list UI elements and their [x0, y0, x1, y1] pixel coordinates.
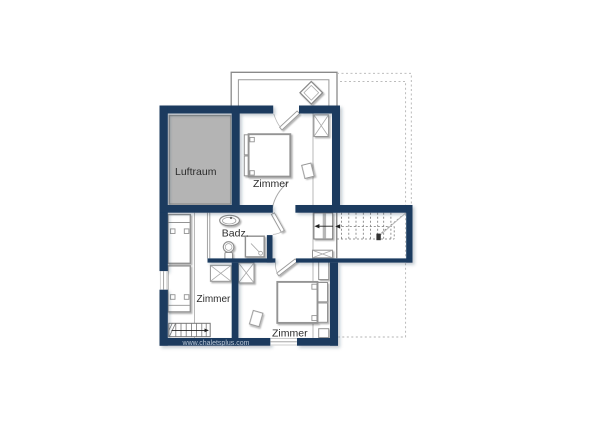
svg-text:Luftraum: Luftraum: [175, 166, 217, 178]
svg-text:Zimmer: Zimmer: [197, 294, 232, 305]
svg-text:www.chaletsplus.com: www.chaletsplus.com: [182, 340, 250, 347]
svg-text:Zimmer: Zimmer: [253, 178, 289, 190]
svg-text:Badz.: Badz.: [222, 228, 249, 240]
svg-text:Zimmer: Zimmer: [272, 327, 308, 339]
